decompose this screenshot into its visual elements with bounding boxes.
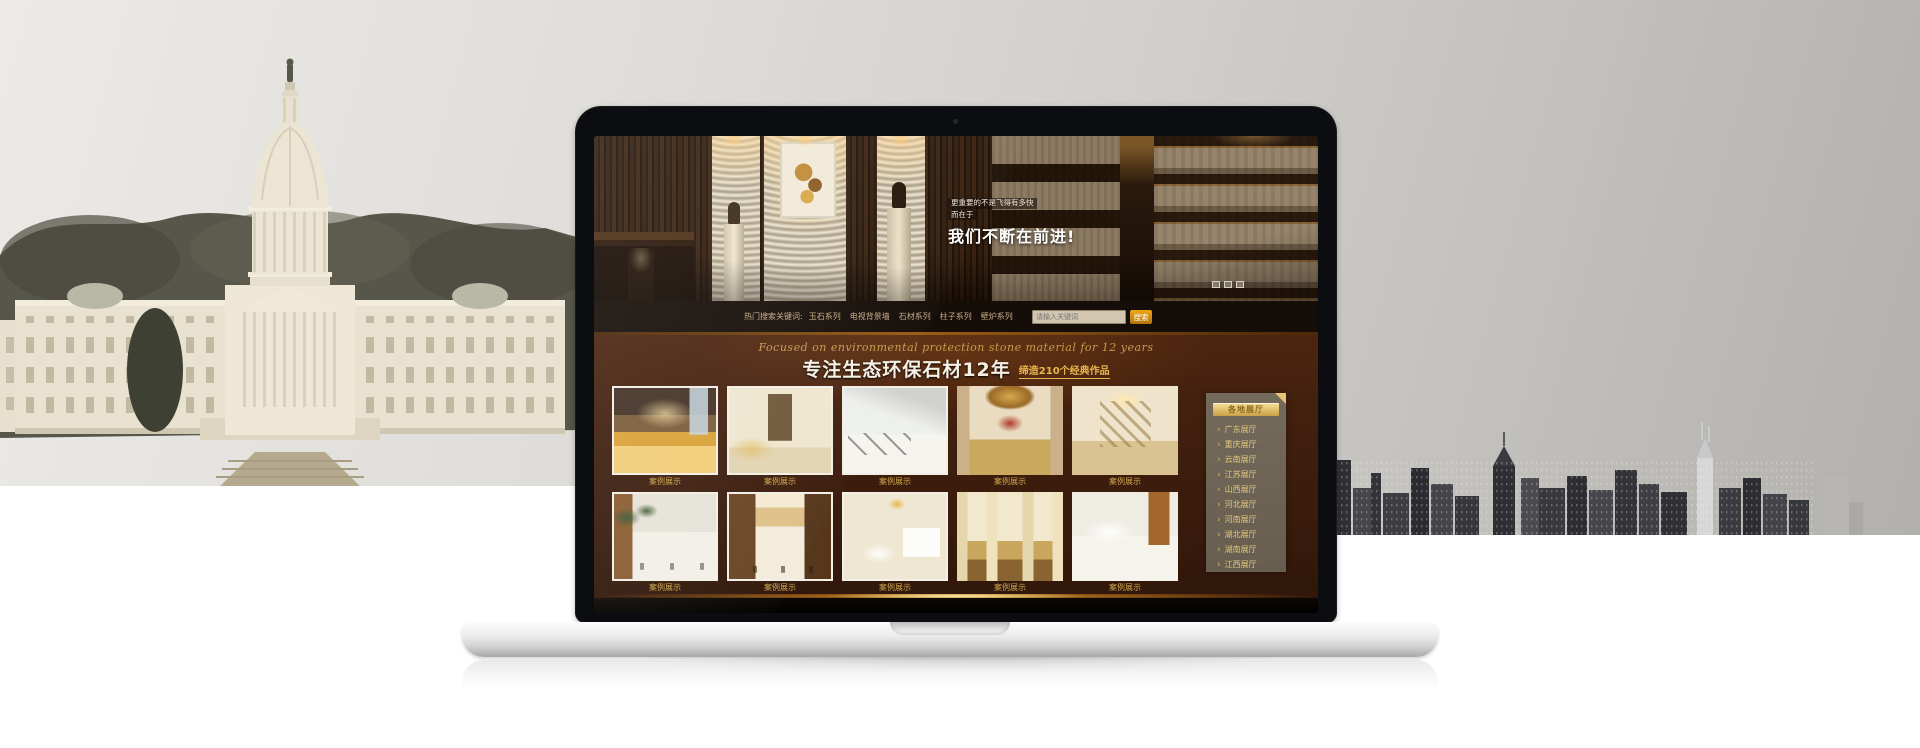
showroom-label: 湖北展厅 (1225, 529, 1257, 540)
showroom-label: 重庆展厅 (1225, 439, 1257, 450)
chevron-right-icon: › (1217, 471, 1221, 479)
showroom-link[interactable]: › 江西展厅 (1206, 557, 1286, 572)
case-caption: 案例展示 (612, 477, 718, 487)
case-photo[interactable] (727, 492, 833, 581)
chevron-right-icon: › (1217, 546, 1221, 554)
hero-headline: 我们不断在前进! (948, 223, 1075, 247)
case-photo[interactable] (612, 492, 718, 581)
case-caption: 案例展示 (727, 583, 833, 593)
case-caption: 案例展示 (727, 477, 833, 487)
capitol-building-photo (0, 0, 580, 490)
search-box: 搜索 (1032, 310, 1152, 324)
folded-corner-icon (1275, 393, 1286, 404)
intro-heading: 专注生态环保石材12年缔造210个经典作品 (594, 355, 1318, 382)
showroom-label: 山西展厅 (1225, 484, 1257, 495)
chevron-right-icon: › (1217, 561, 1221, 569)
case-caption: 案例展示 (1072, 583, 1178, 593)
chevron-right-icon: › (1217, 426, 1221, 434)
website: 更重要的不是飞得有多快 而在于 我们不断在前进! 热门搜索关键词: 玉石系列电视… (594, 136, 1318, 613)
showroom-label: 江苏展厅 (1225, 469, 1257, 480)
laptop-notch (890, 622, 1010, 635)
case-thumbnail[interactable]: 案例展示 (1072, 492, 1178, 593)
case-thumbnail[interactable]: 案例展示 (727, 492, 833, 593)
hot-keyword-link[interactable]: 电视背景墙 (850, 311, 890, 322)
chevron-right-icon: › (1217, 486, 1221, 494)
city-skyline-photo (1325, 418, 1870, 536)
intro-subtitle: 缔造210个经典作品 (1019, 366, 1110, 379)
case-photo[interactable] (842, 386, 948, 475)
carousel-indicators (1212, 281, 1244, 288)
hero-tagline-2: 而在于 (948, 210, 977, 221)
showroom-link[interactable]: › 云南展厅 (1206, 452, 1286, 467)
showroom-link[interactable]: › 河南展厅 (1206, 512, 1286, 527)
showrooms-header: 各地展厅 (1213, 403, 1279, 416)
chevron-right-icon: › (1217, 531, 1221, 539)
case-caption: 案例展示 (957, 583, 1063, 593)
carousel-indicator[interactable] (1224, 281, 1232, 288)
showroom-link[interactable]: › 湖北展厅 (1206, 527, 1286, 542)
carousel-indicator[interactable] (1236, 281, 1244, 288)
case-photo[interactable] (957, 386, 1063, 475)
laptop-base (462, 622, 1438, 657)
hero-slogan: 更重要的不是飞得有多快 而在于 我们不断在前进! (948, 198, 1075, 247)
showroom-link[interactable]: › 山西展厅 (1206, 482, 1286, 497)
hot-keyword-link[interactable]: 壁炉系列 (981, 311, 1013, 322)
showroom-link[interactable]: › 河北展厅 (1206, 497, 1286, 512)
showroom-link[interactable]: › 广东展厅 (1206, 422, 1286, 437)
case-photo[interactable] (957, 492, 1063, 581)
showroom-label: 江西展厅 (1225, 559, 1257, 570)
case-thumbnail[interactable]: 案例展示 (957, 386, 1063, 487)
keyword-bar: 热门搜索关键词: 玉石系列电视背景墙石材系列柱子系列壁炉系列 搜索 (594, 301, 1318, 332)
intro-script-line: Focused on environmental protection ston… (594, 341, 1318, 354)
showroom-link[interactable]: › 湖南展厅 (1206, 542, 1286, 557)
showrooms-panel: 各地展厅 › 广东展厅 › 重庆展厅 (1206, 393, 1286, 572)
hot-keywords: 玉石系列电视背景墙石材系列柱子系列壁炉系列 (809, 311, 1013, 322)
hot-keyword-link[interactable]: 玉石系列 (809, 311, 841, 322)
hero-tagline-1: 更重要的不是飞得有多快 (948, 198, 1037, 209)
search-input[interactable] (1032, 310, 1126, 324)
showroom-link[interactable]: › 江苏展厅 (1206, 467, 1286, 482)
footer-strip (594, 598, 1318, 613)
case-gallery: 案例展示 案例展示 案例展示 (612, 386, 1178, 593)
hot-keywords-label: 热门搜索关键词: (744, 311, 803, 322)
search-button[interactable]: 搜索 (1130, 310, 1152, 324)
laptop-lid: 更重要的不是飞得有多快 而在于 我们不断在前进! 热门搜索关键词: 玉石系列电视… (575, 106, 1337, 623)
scene: 更重要的不是飞得有多快 而在于 我们不断在前进! 热门搜索关键词: 玉石系列电视… (0, 0, 1920, 748)
case-thumbnail[interactable]: 案例展示 (612, 386, 718, 487)
case-caption: 案例展示 (842, 583, 948, 593)
case-caption: 案例展示 (842, 477, 948, 487)
chevron-right-icon: › (1217, 456, 1221, 464)
laptop-reflection (462, 660, 1438, 690)
showroom-link[interactable]: › 重庆展厅 (1206, 437, 1286, 452)
case-thumbnail[interactable]: 案例展示 (957, 492, 1063, 593)
case-thumbnail[interactable]: 案例展示 (1072, 386, 1178, 487)
case-thumbnail[interactable]: 案例展示 (842, 386, 948, 487)
case-caption: 案例展示 (1072, 477, 1178, 487)
case-thumbnail[interactable]: 案例展示 (842, 492, 948, 593)
showrooms-list: › 广东展厅 › 重庆展厅 › (1206, 422, 1286, 572)
chevron-right-icon: › (1217, 501, 1221, 509)
showroom-label: 广东展厅 (1225, 424, 1257, 435)
laptop-screen: 更重要的不是飞得有多快 而在于 我们不断在前进! 热门搜索关键词: 玉石系列电视… (594, 136, 1318, 613)
case-thumbnail[interactable]: 案例展示 (612, 492, 718, 593)
showroom-label: 云南展厅 (1225, 454, 1257, 465)
main-section: Focused on environmental protection ston… (594, 335, 1318, 613)
case-photo[interactable] (1072, 386, 1178, 475)
case-photo[interactable] (842, 492, 948, 581)
hot-keyword-link[interactable]: 柱子系列 (940, 311, 972, 322)
hero-banner: 更重要的不是飞得有多快 而在于 我们不断在前进! (594, 136, 1318, 301)
webcam-icon (953, 119, 958, 124)
case-photo[interactable] (1072, 492, 1178, 581)
case-photo[interactable] (612, 386, 718, 475)
chevron-right-icon: › (1217, 516, 1221, 524)
case-photo[interactable] (727, 386, 833, 475)
showroom-label: 河北展厅 (1225, 499, 1257, 510)
showroom-label: 河南展厅 (1225, 514, 1257, 525)
carousel-indicator[interactable] (1212, 281, 1220, 288)
case-thumbnail[interactable]: 案例展示 (727, 386, 833, 487)
hot-keyword-link[interactable]: 石材系列 (899, 311, 931, 322)
case-caption: 案例展示 (957, 477, 1063, 487)
showroom-label: 湖南展厅 (1225, 544, 1257, 555)
intro-title: 专注生态环保石材12年 (802, 359, 1010, 381)
case-caption: 案例展示 (612, 583, 718, 593)
chevron-right-icon: › (1217, 441, 1221, 449)
